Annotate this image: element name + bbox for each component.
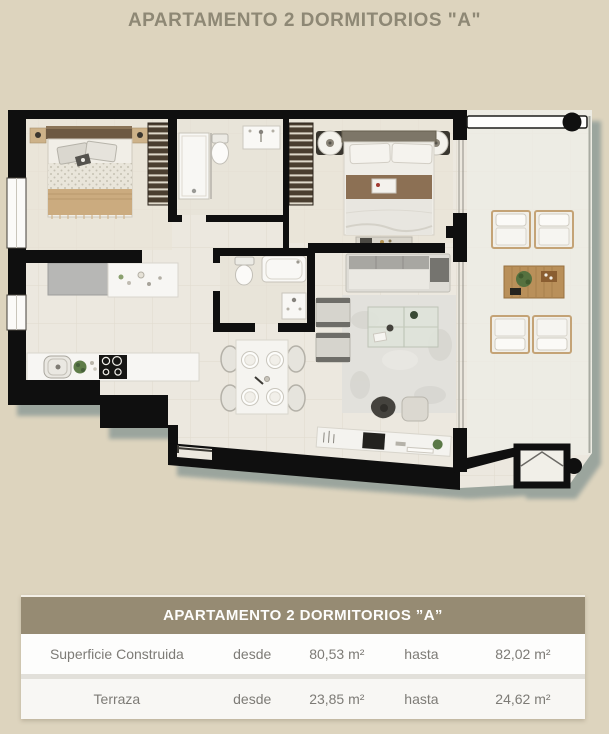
table-row: Terraza desde 23,85 m² hasta 24,62 m² [21,679,585,719]
column [563,113,582,132]
floorplan-image [0,95,609,505]
range-from-value: 23,85 m² [292,691,382,707]
bed-throw [48,189,132,215]
terrace-table [504,266,564,298]
spec-label: Superficie Construida [21,646,213,662]
spec-table-header: APARTAMENTO 2 DORMITORIOS ”A” [21,597,585,634]
bed-2 [342,131,436,235]
range-to-value: 24,62 m² [461,691,585,707]
kitchen-counter-top [108,263,178,297]
railing-top [467,113,587,132]
kitchen-island [48,263,108,295]
table-row: Superficie Construida desde 80,53 m² has… [21,634,585,674]
range-from-value: 80,53 m² [292,646,382,662]
range-from-word: desde [213,646,292,662]
pouf-light [402,397,428,421]
range-to-word: hasta [382,691,461,707]
column [566,458,582,474]
sink [282,293,306,319]
plant [516,271,532,287]
wardrobe-2 [289,123,313,205]
bedroom-1 [30,123,172,219]
spec-table: APARTAMENTO 2 DORMITORIOS ”A” Superficie… [21,595,585,719]
toilet [235,257,254,265]
plant [74,361,87,374]
range-from-word: desde [213,691,292,707]
page-background: APARTAMENTO 2 DORMITORIOS "A" [0,0,609,734]
cooktop [99,355,127,379]
range-to-value: 82,02 m² [461,646,585,662]
page-title: APARTAMENTO 2 DORMITORIOS "A" [0,10,609,32]
coffee-table [368,307,438,347]
range-to-word: hasta [382,646,461,662]
tv [362,432,385,449]
sofa [346,254,450,292]
spec-label: Terraza [21,691,213,707]
bed-1 [48,139,132,219]
